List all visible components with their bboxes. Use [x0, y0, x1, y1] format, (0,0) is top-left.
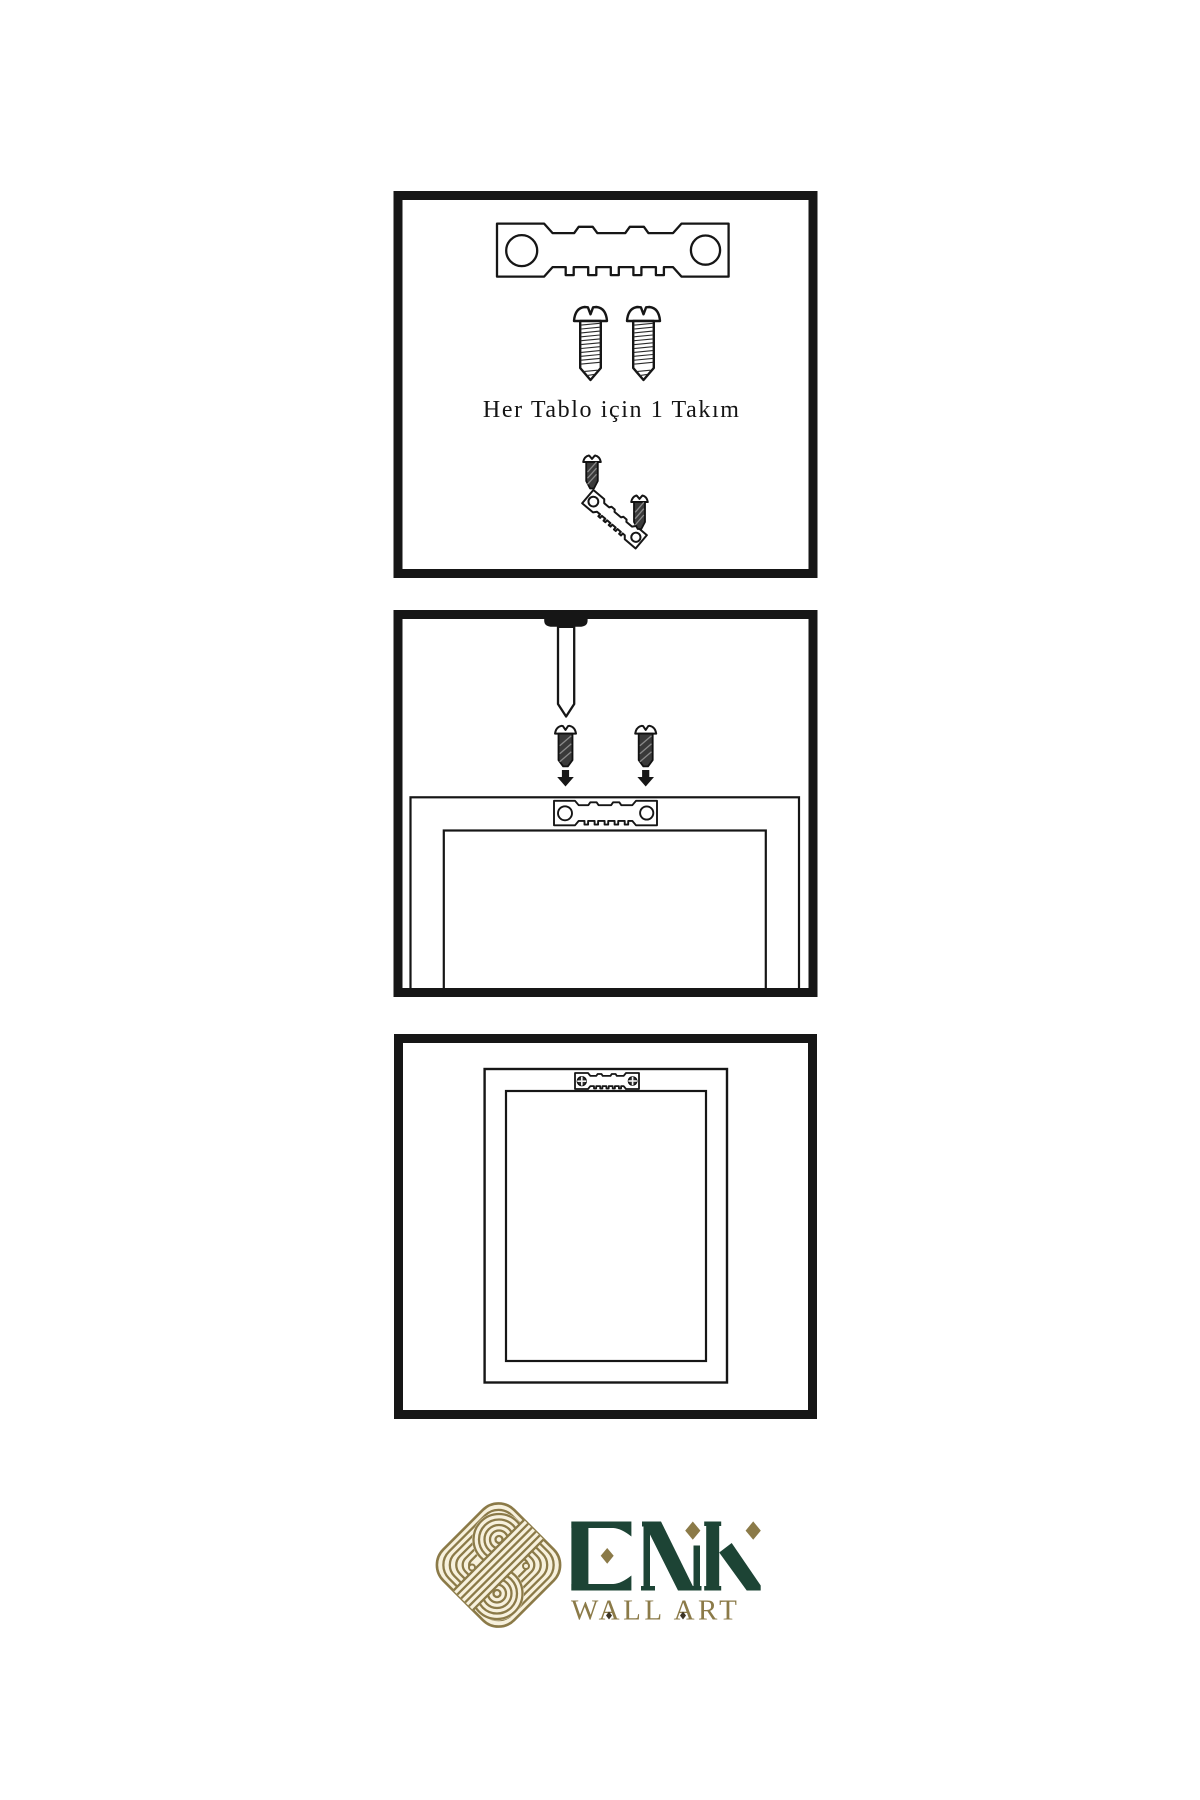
- svg-text:WALL ART: WALL ART: [571, 1595, 740, 1627]
- svg-text:Her Tablo için 1 Takım: Her Tablo için 1 Takım: [483, 397, 741, 423]
